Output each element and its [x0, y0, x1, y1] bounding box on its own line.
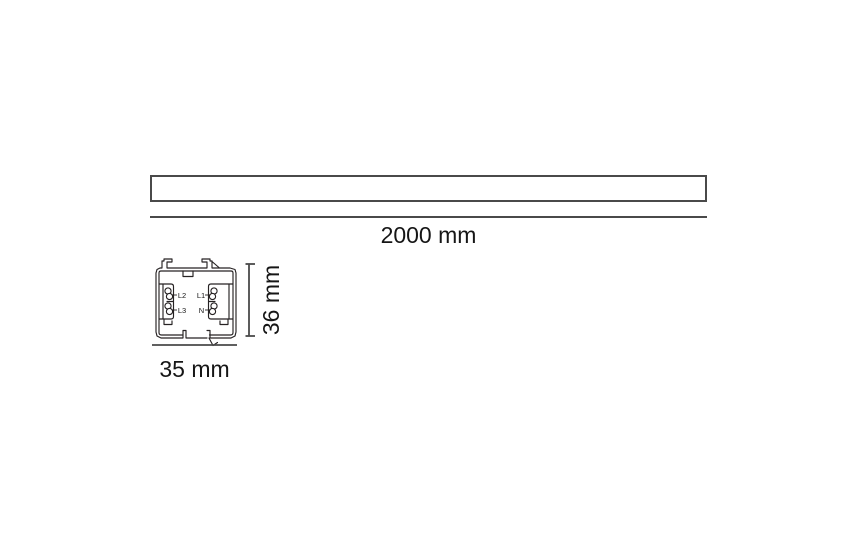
- conductor-circle-l2-b: [166, 293, 172, 299]
- conductor-circle-l3-b: [166, 308, 172, 314]
- profile-top-rib: [183, 271, 193, 277]
- track-cross-section-drawing: L2 L1 L3 N 36 mm 35 mm: [146, 252, 296, 387]
- conductor-circle-n-b: [209, 308, 215, 314]
- width-dimension-label: 35 mm: [159, 356, 229, 382]
- conductor-label-l1: L1: [197, 291, 205, 300]
- profile-inner-contour: [159, 271, 233, 335]
- conductor-circle-l1-b: [209, 293, 215, 299]
- length-dimension-label: 2000 mm: [150, 221, 707, 249]
- length-dimension-line: [150, 216, 707, 218]
- diagram-canvas: 2000 mm L2 L1 L3 N: [0, 0, 856, 540]
- conductor-label-l3: L3: [178, 306, 186, 315]
- height-dimension-label: 36 mm: [258, 265, 284, 335]
- conductor-label-n: N: [199, 306, 204, 315]
- track-side-view-rectangle: [150, 175, 707, 202]
- conductor-label-l2: L2: [178, 291, 186, 300]
